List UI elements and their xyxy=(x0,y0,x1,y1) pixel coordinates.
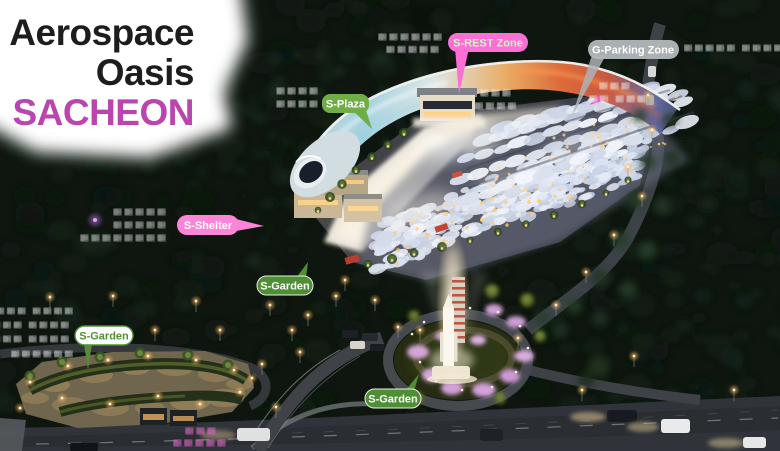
svg-text:Oasis: Oasis xyxy=(96,52,194,93)
svg-text:S-Garden: S-Garden xyxy=(79,331,129,343)
svg-text:Aerospace: Aerospace xyxy=(9,12,194,53)
svg-text:S-Garden: S-Garden xyxy=(368,394,418,406)
svg-text:S-Garden: S-Garden xyxy=(260,281,310,293)
svg-text:S-Plaza: S-Plaza xyxy=(326,99,366,111)
svg-text:SACHEON: SACHEON xyxy=(12,92,194,133)
svg-text:S-Shelter: S-Shelter xyxy=(184,220,233,232)
svg-text:S-REST Zone: S-REST Zone xyxy=(453,38,523,50)
svg-text:G-Parking Zone: G-Parking Zone xyxy=(592,45,674,57)
